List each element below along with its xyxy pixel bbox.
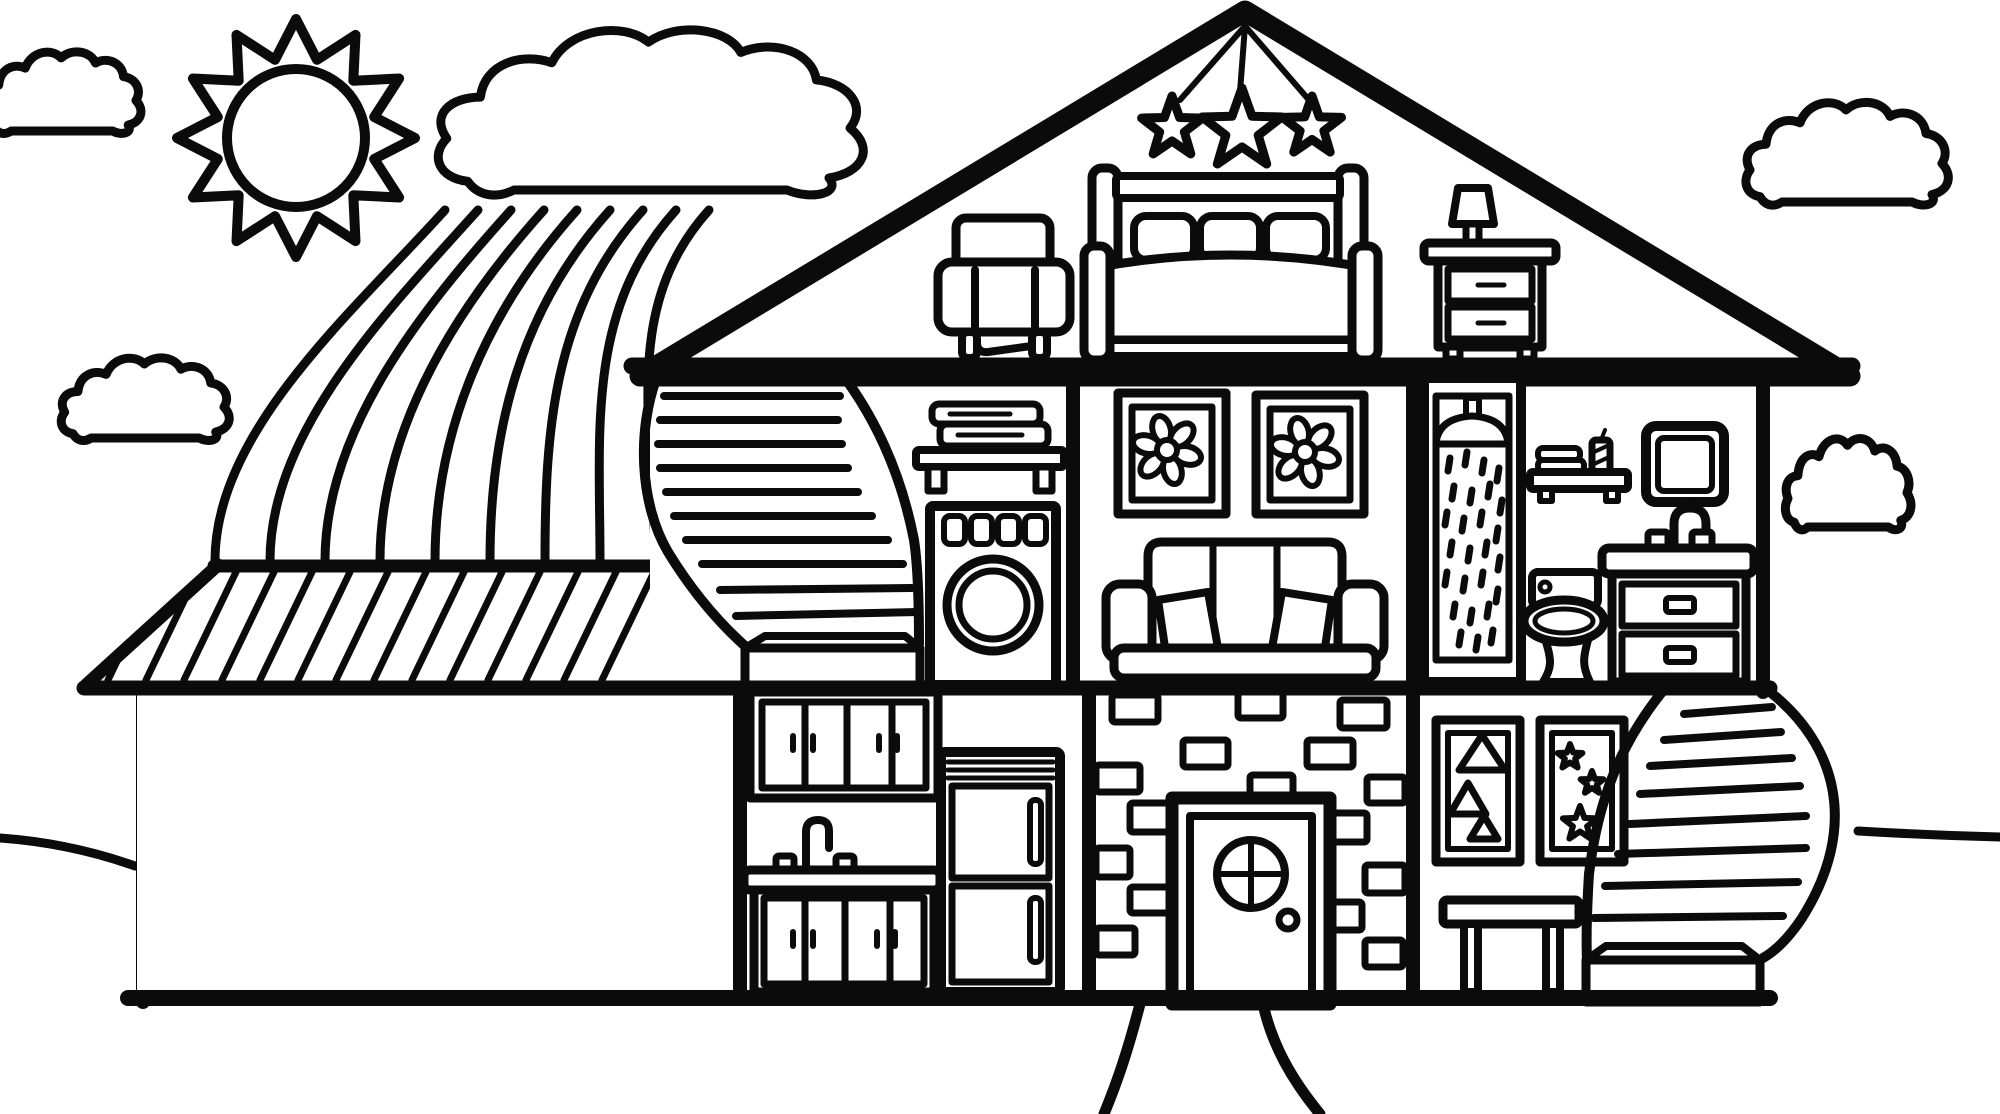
drawer-handle — [1666, 648, 1694, 662]
water-drop — [1488, 484, 1490, 497]
fridge-handle — [1030, 898, 1041, 962]
drawer-handle — [1666, 598, 1694, 612]
water-drop — [1498, 557, 1500, 570]
lower-cabinets — [754, 890, 934, 992]
water-drop — [1453, 604, 1455, 617]
shower-stall — [1424, 378, 1521, 682]
shelf-leg — [1606, 489, 1618, 501]
brick — [1238, 692, 1283, 718]
brick — [1096, 928, 1135, 955]
brick — [1307, 740, 1353, 767]
water-drop — [1450, 542, 1452, 555]
water-drop — [1470, 490, 1472, 503]
mirror — [1646, 426, 1724, 502]
water-drop — [1476, 637, 1478, 650]
washing-machine — [930, 506, 1056, 685]
water-drop — [1491, 630, 1493, 643]
stair-tread — [1594, 916, 1783, 918]
shelf-bracket — [928, 467, 944, 491]
brick — [1183, 740, 1228, 767]
stair-tread — [736, 612, 918, 616]
water-drop — [1465, 452, 1467, 465]
fridge-handle — [1030, 800, 1041, 864]
water-drop — [1482, 460, 1484, 473]
water-drop — [1487, 604, 1489, 617]
brick — [1365, 940, 1403, 967]
front-door — [1172, 798, 1330, 1004]
water-drop — [1470, 610, 1472, 623]
brick — [1096, 765, 1140, 792]
bed-foot-post — [1084, 246, 1110, 360]
door-knob — [1279, 911, 1297, 929]
table-leg — [1546, 924, 1560, 992]
water-drop — [1496, 528, 1498, 541]
armchair-leg — [1032, 332, 1047, 358]
water-drop — [1480, 512, 1482, 525]
water-drop — [1445, 572, 1447, 585]
sofa-base — [1114, 648, 1376, 678]
headboard-rail — [1116, 176, 1340, 198]
stair-tread — [1605, 882, 1798, 886]
bed-base — [1098, 340, 1362, 356]
triangle-picture — [1436, 720, 1520, 862]
water-drop — [1459, 632, 1461, 645]
stair-tread — [720, 588, 912, 590]
upper-cabinets — [750, 692, 938, 798]
nightstand-leg — [1520, 347, 1534, 359]
brick — [1365, 865, 1405, 893]
water-drop — [1496, 589, 1498, 602]
nightstand-leg — [1446, 347, 1460, 359]
lamp-shade — [1452, 188, 1494, 224]
blanket — [1094, 255, 1368, 340]
brick — [1340, 700, 1387, 728]
top-left-cloud — [0, 52, 141, 134]
sun-disc — [227, 69, 365, 207]
shelf-bracket — [1036, 467, 1052, 491]
water-drop — [1452, 486, 1454, 499]
sofa — [1106, 542, 1384, 688]
coloring-page — [0, 0, 2000, 1114]
double-bed — [1084, 168, 1378, 360]
water-drop — [1462, 518, 1464, 531]
shower-head-icon — [1436, 416, 1508, 444]
water-drop — [1485, 542, 1487, 555]
brick — [1367, 777, 1405, 803]
water-drop — [1500, 500, 1502, 513]
water-drop — [1448, 458, 1450, 471]
flower-center — [1157, 440, 1177, 460]
coloring-page-canvas — [0, 0, 2000, 1114]
water-drop — [1497, 468, 1499, 481]
shelf-leg — [1540, 489, 1552, 501]
armchair-leg — [962, 332, 977, 358]
water-drop — [1445, 512, 1447, 525]
ground-line-right — [1858, 831, 2000, 837]
table-leg — [1464, 924, 1478, 992]
water-drop — [1463, 578, 1465, 591]
brick — [1096, 848, 1130, 877]
water-drop — [1481, 572, 1483, 585]
flower-center — [1295, 442, 1315, 462]
bed-foot-post — [1352, 246, 1378, 360]
refrigerator — [941, 752, 1060, 992]
water-drop — [1468, 548, 1470, 561]
brick — [1112, 695, 1158, 722]
